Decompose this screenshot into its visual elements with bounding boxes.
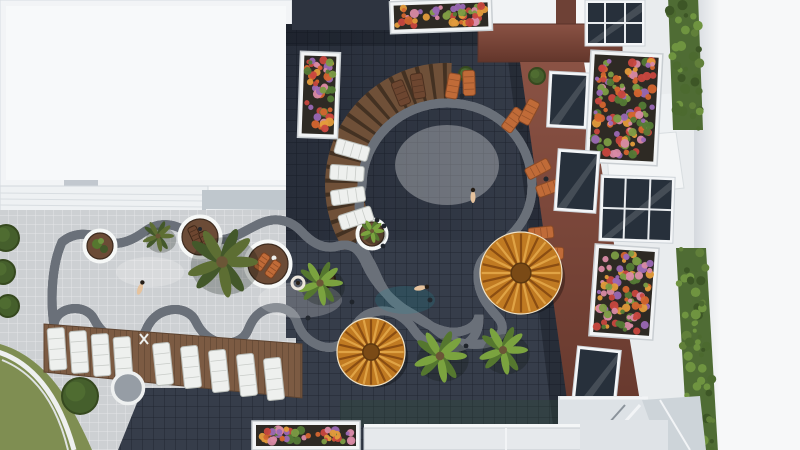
top-brown-post xyxy=(556,0,576,26)
stool xyxy=(460,94,465,99)
scene-canvas xyxy=(0,0,800,450)
sun-lounger-orange xyxy=(463,70,476,95)
person-swim xyxy=(471,188,476,203)
window xyxy=(547,71,590,129)
stool xyxy=(428,298,433,303)
person-dot xyxy=(381,244,386,249)
bush xyxy=(529,68,545,84)
flower-planter xyxy=(585,50,663,166)
bush xyxy=(0,260,15,284)
stool xyxy=(306,316,311,321)
water-highlight xyxy=(395,125,499,205)
water-shade xyxy=(375,286,435,314)
bottom-roof xyxy=(364,428,582,450)
flower-planter xyxy=(589,244,659,340)
bush xyxy=(0,295,19,317)
window xyxy=(585,0,645,46)
bush xyxy=(62,378,98,414)
pool-island xyxy=(85,231,116,262)
window xyxy=(554,149,600,214)
bush xyxy=(0,225,19,251)
sun-lounger-white xyxy=(69,330,89,373)
resort-aerial-view xyxy=(0,0,800,450)
person-dot xyxy=(375,218,380,223)
flower-planter xyxy=(252,421,360,450)
water-highlight xyxy=(116,257,184,287)
round-planter xyxy=(113,373,144,404)
person-dot xyxy=(382,224,387,229)
top-left-roof-inner xyxy=(6,6,286,180)
flower-planter xyxy=(298,51,341,138)
flower-planter xyxy=(389,0,492,34)
person-dot xyxy=(464,344,469,349)
sun-lounger-white xyxy=(330,164,365,181)
sun-lounger-white xyxy=(47,327,67,370)
bottom-roof-2 xyxy=(580,420,668,450)
sun-lounger-white xyxy=(91,333,111,376)
stool xyxy=(544,177,549,182)
window xyxy=(599,175,675,244)
person-dot xyxy=(350,300,355,305)
top-deck-gap xyxy=(292,0,390,30)
stool xyxy=(519,125,524,130)
